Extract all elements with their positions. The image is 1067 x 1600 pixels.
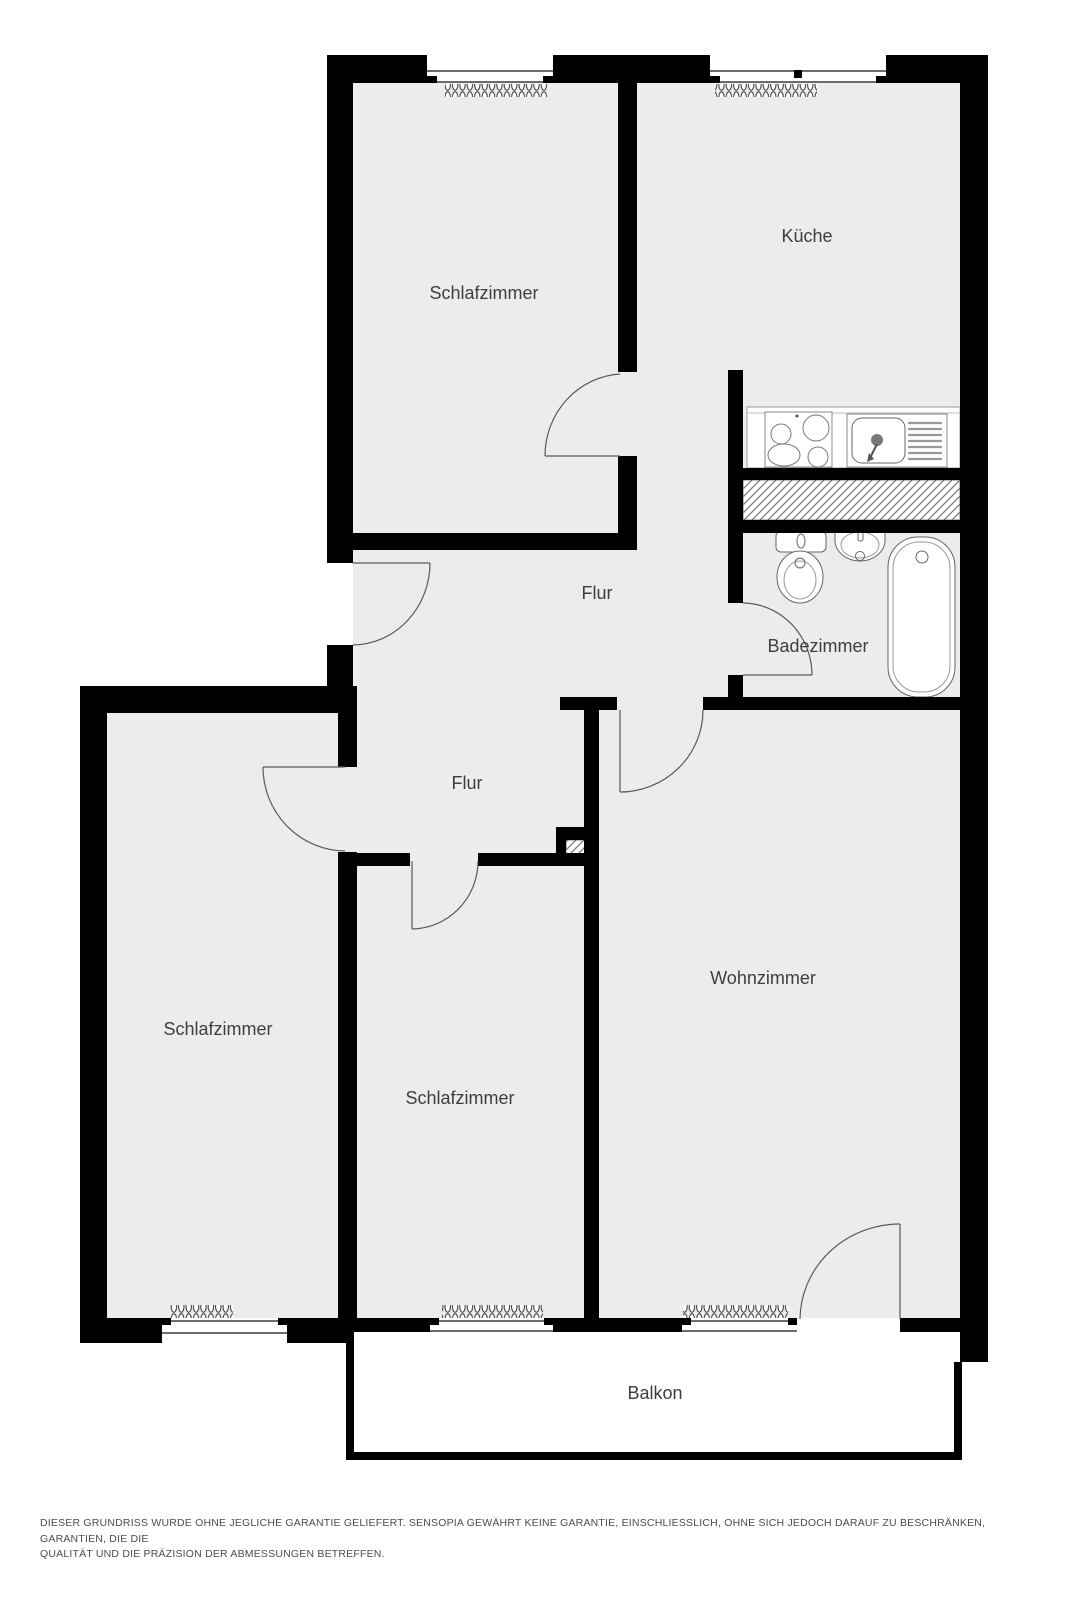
wall-segment <box>553 1318 682 1332</box>
wall-segment <box>80 686 107 1343</box>
balcony-wall <box>346 1332 354 1460</box>
wall-segment <box>618 83 637 372</box>
wall-segment <box>584 697 599 1318</box>
window-bedroom-top <box>427 71 553 83</box>
disclaimer-line-2: QUALITÄT UND DIE PRÄZISION DER ABMESSUNG… <box>40 1547 1040 1563</box>
shaft-hatched-area <box>743 480 960 520</box>
room-label-kueche: Küche <box>781 226 832 246</box>
room-label-badezimmer: Badezimmer <box>767 636 868 656</box>
wall-segment <box>347 1318 430 1332</box>
room-label-schlafzimmer-mitte: Schlafzimmer <box>405 1088 514 1108</box>
bathtub-icon <box>888 537 955 697</box>
radiator-icon <box>442 1305 543 1318</box>
wall-segment <box>80 686 353 713</box>
balcony-wall <box>954 1362 962 1460</box>
radiator-icon <box>683 1305 788 1318</box>
floor-plan: Schlafzimmer Küche Flur Badezimmer Flur … <box>0 0 1067 1600</box>
wall-segment <box>900 1318 960 1332</box>
radiator-icon <box>170 1305 233 1318</box>
burner-icon <box>768 444 800 466</box>
wall-segment <box>338 852 357 1332</box>
kitchen-counter <box>747 407 960 468</box>
wall-segment <box>338 686 357 767</box>
window-bedroom-middle <box>430 1318 553 1331</box>
window-kitchen <box>710 70 886 83</box>
wall-segment <box>478 853 599 866</box>
balcony-wall <box>346 1452 962 1460</box>
drainboard-icon <box>909 423 941 459</box>
room-label-flur-oben: Flur <box>582 583 613 603</box>
burner-icon <box>808 447 828 467</box>
wall-segment <box>327 55 353 563</box>
burner-icon <box>771 424 791 444</box>
room-label-schlafzimmer-top: Schlafzimmer <box>429 283 538 303</box>
disclaimer-text: DIESER GRUNDRISS WURDE OHNE JEGLICHE GAR… <box>40 1516 1040 1563</box>
wall-segment <box>330 533 637 550</box>
wall-segment <box>743 468 960 480</box>
wall-segment <box>287 1318 347 1343</box>
room-label-flur-unten: Flur <box>452 773 483 793</box>
window-livingroom <box>682 1318 797 1331</box>
wall-segment <box>728 520 960 533</box>
room-label-schlafzimmer-links: Schlafzimmer <box>163 1019 272 1039</box>
room-label-balkon: Balkon <box>627 1383 682 1403</box>
wall-segment <box>80 1318 162 1343</box>
stove-dot <box>796 415 799 418</box>
wall-segment <box>728 370 743 603</box>
wall-segment <box>338 853 410 866</box>
floor-lower-section <box>107 710 960 1318</box>
wall-segment <box>960 55 988 1362</box>
wall-segment <box>553 55 710 83</box>
wall-segment <box>703 697 960 710</box>
room-label-wohnzimmer: Wohnzimmer <box>710 968 816 988</box>
burner-icon <box>803 415 829 441</box>
wall-segment <box>556 827 599 840</box>
floor-upper-section <box>353 83 960 710</box>
radiator-icon <box>445 84 547 97</box>
disclaimer-line-1: DIESER GRUNDRISS WURDE OHNE JEGLICHE GAR… <box>40 1516 1040 1547</box>
window-bedroom-left <box>162 1318 287 1333</box>
radiator-icon <box>715 84 817 97</box>
